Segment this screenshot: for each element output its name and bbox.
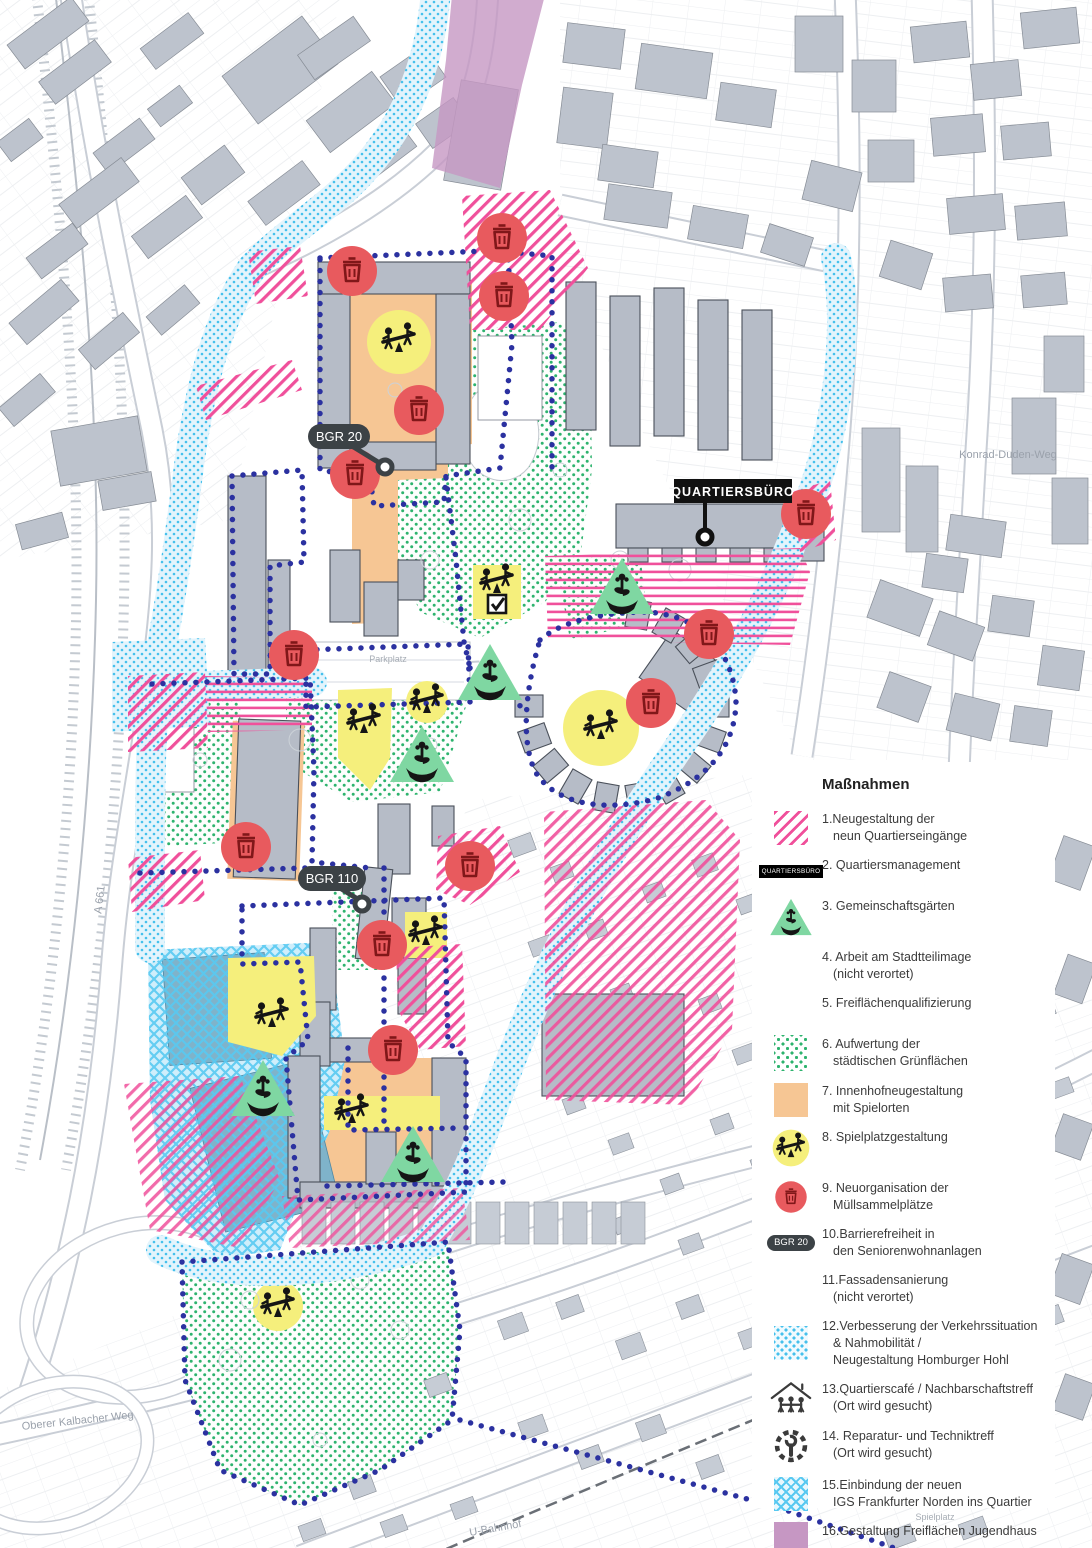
sym-house-swatch: [768, 1380, 814, 1416]
building: [592, 1202, 616, 1244]
legend-item-15: 15.Einbindung der neuenIGS Frankfurter N…: [760, 1476, 1055, 1511]
legend-swatch-cell: QUARTIERSBÜRO: [760, 856, 822, 886]
legend-item-line: 15.Einbindung der neuen: [822, 1478, 962, 1492]
purple-swatch: [774, 1522, 808, 1548]
waste-point-marker: [479, 271, 529, 321]
street-label-konrad-duden-weg: Konrad-Duden-Weg: [959, 449, 1057, 461]
legend-swatch-cell: [760, 810, 822, 845]
legend-item-label: 9. Neuorganisation derMüllsammelplätze: [822, 1179, 1055, 1214]
building: [930, 114, 985, 156]
legend-item-label: 13.Quartierscafé / Nachbarschaftstreff(O…: [822, 1380, 1055, 1416]
legend-swatch-cell: [760, 1380, 822, 1416]
legend-item-14: 14. Reparatur- und Techniktreff(Ort wird…: [760, 1427, 1055, 1465]
legend-swatch-cell: [760, 1035, 822, 1071]
building: [862, 428, 900, 532]
waste-point-marker: [394, 385, 444, 435]
legend-item-label: 10.Barrierefreiheit inden Seniorenwohnan…: [822, 1225, 1055, 1260]
building: [852, 60, 896, 112]
legend-item-9: 9. Neuorganisation derMüllsammelplätze: [760, 1179, 1055, 1214]
building: [698, 300, 728, 450]
waste-point-marker: [327, 246, 377, 296]
sym-play-swatch: [771, 1128, 811, 1168]
bgr110-label: BGR 110: [306, 871, 359, 886]
building: [534, 1202, 558, 1244]
building: [922, 553, 968, 593]
building: [906, 466, 938, 552]
sym-trash-swatch: [774, 1180, 808, 1214]
legend-item-line: mit Spielorten: [822, 1100, 1055, 1117]
legend-item-label: 16.Gestaltung Freiflächen Jugendhaus: [822, 1522, 1055, 1548]
legend-item-3: 3. Gemeinschaftsgärten: [760, 897, 1055, 937]
legend-item-label: 4. Arbeit am Stadtteilimage(nicht verort…: [822, 948, 1055, 983]
building: [868, 140, 914, 182]
legend-swatch-cell: [760, 1179, 822, 1214]
legend-item-line: den Seniorenwohnanlagen: [822, 1243, 1055, 1260]
building: [654, 288, 684, 436]
legend-item-1: 1.Neugestaltung derneun Quartierseingäng…: [760, 810, 1055, 845]
legend-item-16: 16.Gestaltung Freiflächen Jugendhaus: [760, 1522, 1055, 1548]
waste-point-marker: [477, 213, 527, 263]
waste-point-marker: [357, 920, 407, 970]
legend-swatch-cell: [760, 1271, 822, 1306]
legend-swatch-cell: [760, 1476, 822, 1511]
legend-item-4: 4. Arbeit am Stadtteilimage(nicht verort…: [760, 948, 1055, 983]
legend-swatch-cell: BGR 20: [760, 1225, 822, 1260]
legend-item-10: BGR 2010.Barrierefreiheit inden Senioren…: [760, 1225, 1055, 1260]
building: [505, 1202, 529, 1244]
building: [716, 82, 777, 127]
legend-item-label: 11.Fassadensanierung(nicht verortet): [822, 1271, 1055, 1306]
building: [1044, 336, 1084, 392]
green-dots-swatch: [774, 1035, 808, 1071]
legend-item-13: 13.Quartierscafé / Nachbarschaftstreff(O…: [760, 1380, 1055, 1416]
building: [1012, 398, 1056, 474]
label-parkplatz: Parkplatz: [369, 654, 407, 664]
building: [610, 296, 640, 446]
waste-point-marker: [445, 841, 495, 891]
legend-item-label: 1.Neugestaltung derneun Quartierseingäng…: [822, 810, 1055, 845]
legend-item-line: städtischen Grünflächen: [822, 1053, 1055, 1070]
legend-item-line: IGS Frankfurter Norden ins Quartier: [822, 1494, 1055, 1511]
legend-item-line: 1.Neugestaltung der: [822, 812, 935, 826]
legend-item-label: 8. Spielplatzgestaltung: [822, 1128, 1055, 1168]
building: [398, 560, 424, 600]
building: [1020, 7, 1079, 49]
building: [330, 550, 360, 622]
building: [635, 43, 713, 99]
building: [563, 23, 625, 70]
building: [563, 1202, 587, 1244]
legend-swatch-cell: [760, 1522, 822, 1548]
legend-item-line: (Ort wird gesucht): [822, 1445, 1055, 1462]
legend-item-line: 9. Neuorganisation der: [822, 1181, 948, 1195]
legend-item-7: 7. Innenhofneugestaltungmit Spielorten: [760, 1082, 1055, 1117]
legend-item-8: 8. Spielplatzgestaltung: [760, 1128, 1055, 1168]
sym-garden-swatch: [769, 897, 813, 937]
quartiersbuero-mini-label: QUARTIERSBÜRO: [759, 865, 824, 878]
legend-swatch-cell: [760, 1082, 822, 1117]
legend-swatch-cell: [760, 1128, 822, 1168]
legend-item-line: 10.Barrierefreiheit in: [822, 1227, 935, 1241]
legend-item-line: 2. Quartiersmanagement: [822, 858, 960, 872]
legend-item-12: 12.Verbesserung der Verkehrssituation& N…: [760, 1317, 1055, 1369]
legend-item-line: (Ort wird gesucht): [822, 1398, 1055, 1415]
building: [1037, 645, 1084, 690]
building: [1010, 706, 1053, 747]
pink-hatch-swatch: [774, 811, 808, 845]
legend-swatch-cell: [760, 1317, 822, 1369]
legend-item-line: 11.Fassadensanierung: [822, 1273, 948, 1287]
sym-gear-swatch: [772, 1427, 810, 1465]
building: [598, 144, 658, 187]
legend-swatch-cell: [760, 948, 822, 983]
checkbox-marker: [488, 595, 506, 613]
lightblue-dots-swatch: [774, 1326, 808, 1360]
building: [476, 1202, 500, 1244]
legend-swatch-cell: [760, 994, 822, 1024]
building: [947, 194, 1006, 235]
building: [557, 87, 613, 149]
building: [742, 310, 772, 460]
legend-item-label: 5. Freiflächenqualifizierung: [822, 994, 1055, 1024]
bgr-pill-swatch: BGR 20: [767, 1235, 815, 1251]
city-map: QUARTIERSBÜRO BGR 20 BGR 110 Konrad-Dude…: [0, 0, 1092, 1548]
legend-item-label: 14. Reparatur- und Techniktreff(Ort wird…: [822, 1427, 1055, 1465]
building: [1021, 272, 1068, 308]
legend-item-6: 6. Aufwertung derstädtischen Grünflächen: [760, 1035, 1055, 1071]
quartiersbuero-label: QUARTIERSBÜRO: [671, 484, 794, 499]
legend-item-line: 5. Freiflächenqualifizierung: [822, 996, 971, 1010]
legend-item-line: 16.Gestaltung Freiflächen Jugendhaus: [822, 1524, 1037, 1538]
legend-item-label: 12.Verbesserung der Verkehrssituation& N…: [822, 1317, 1055, 1369]
waste-point-marker: [684, 609, 734, 659]
legend-item-line: 8. Spielplatzgestaltung: [822, 1130, 948, 1144]
legend-item-line: 12.Verbesserung der Verkehrssituation: [822, 1319, 1037, 1333]
legend-item-2: QUARTIERSBÜRO2. Quartiersmanagement: [760, 856, 1055, 886]
legend-panel: Maßnahmen 1.Neugestaltung derneun Quarti…: [752, 762, 1055, 1508]
legend-item-line: 14. Reparatur- und Techniktreff: [822, 1429, 994, 1443]
legend-item-line: 3. Gemeinschaftsgärten: [822, 899, 955, 913]
building: [566, 282, 596, 430]
legend-item-line: 13.Quartierscafé / Nachbarschaftstreff: [822, 1382, 1033, 1396]
building: [795, 16, 843, 72]
waste-point-marker: [269, 630, 319, 680]
legend-item-label: 2. Quartiersmanagement: [822, 856, 1055, 886]
building: [1052, 478, 1088, 544]
bgr20-label: BGR 20: [316, 429, 362, 444]
building: [1001, 122, 1052, 160]
legend-item-label: 3. Gemeinschaftsgärten: [822, 897, 1055, 937]
building: [910, 21, 969, 63]
building: [946, 514, 1006, 557]
legend-item-line: neun Quartierseingänge: [822, 828, 1055, 845]
waste-point-marker: [221, 822, 271, 872]
building: [943, 274, 994, 312]
waste-point-marker: [368, 1025, 418, 1075]
legend-item-line: & Nahmobilität /: [822, 1335, 1055, 1352]
building: [1015, 202, 1068, 240]
building: [364, 582, 398, 636]
legend-item-line: (nicht verortet): [822, 966, 1055, 983]
legend-item-label: 7. Innenhofneugestaltungmit Spielorten: [822, 1082, 1055, 1117]
legend-item-line: 6. Aufwertung der: [822, 1037, 920, 1051]
waste-point-marker: [626, 678, 676, 728]
legend-item-5: 5. Freiflächenqualifizierung: [760, 994, 1055, 1024]
legend-item-line: 4. Arbeit am Stadtteilimage: [822, 950, 971, 964]
building: [621, 1202, 645, 1244]
legend-item-line: 7. Innenhofneugestaltung: [822, 1084, 963, 1098]
legend-item-label: 6. Aufwertung derstädtischen Grünflächen: [822, 1035, 1055, 1071]
legend-item-label: 15.Einbindung der neuenIGS Frankfurter N…: [822, 1476, 1055, 1511]
legend-swatch-cell: [760, 1427, 822, 1465]
building: [378, 804, 410, 874]
legend-item-line: (nicht verortet): [822, 1289, 1055, 1306]
building: [970, 60, 1022, 101]
legend-title: Maßnahmen: [822, 776, 1055, 794]
legend-item-line: Neugestaltung Homburger Hohl: [822, 1352, 1055, 1369]
legend-item-11: 11.Fassadensanierung(nicht verortet): [760, 1271, 1055, 1306]
legend-swatch-cell: [760, 897, 822, 937]
blue-cross-swatch: [774, 1477, 808, 1511]
orange-swatch: [774, 1083, 808, 1117]
building: [436, 294, 470, 464]
legend-item-line: Müllsammelplätze: [822, 1197, 1055, 1214]
building: [988, 595, 1035, 636]
